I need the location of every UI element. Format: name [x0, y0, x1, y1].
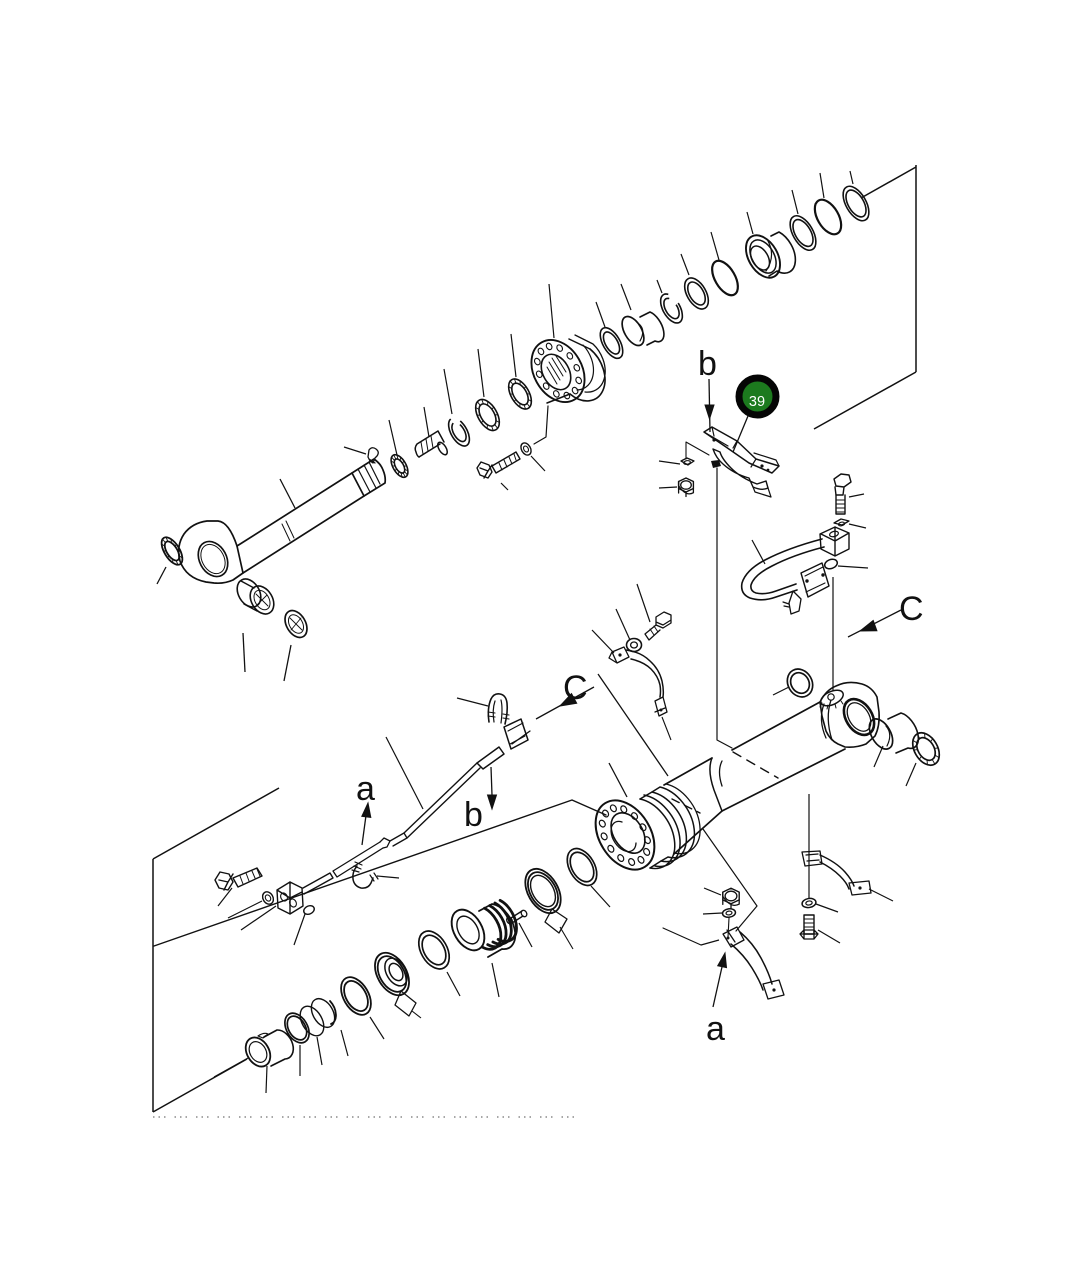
svg-text:a: a — [356, 770, 375, 808]
svg-text:b: b — [698, 345, 717, 383]
svg-text:39: 39 — [749, 394, 765, 410]
svg-text:C: C — [899, 590, 924, 628]
svg-text:b: b — [464, 796, 483, 834]
svg-text:a: a — [706, 1010, 725, 1048]
